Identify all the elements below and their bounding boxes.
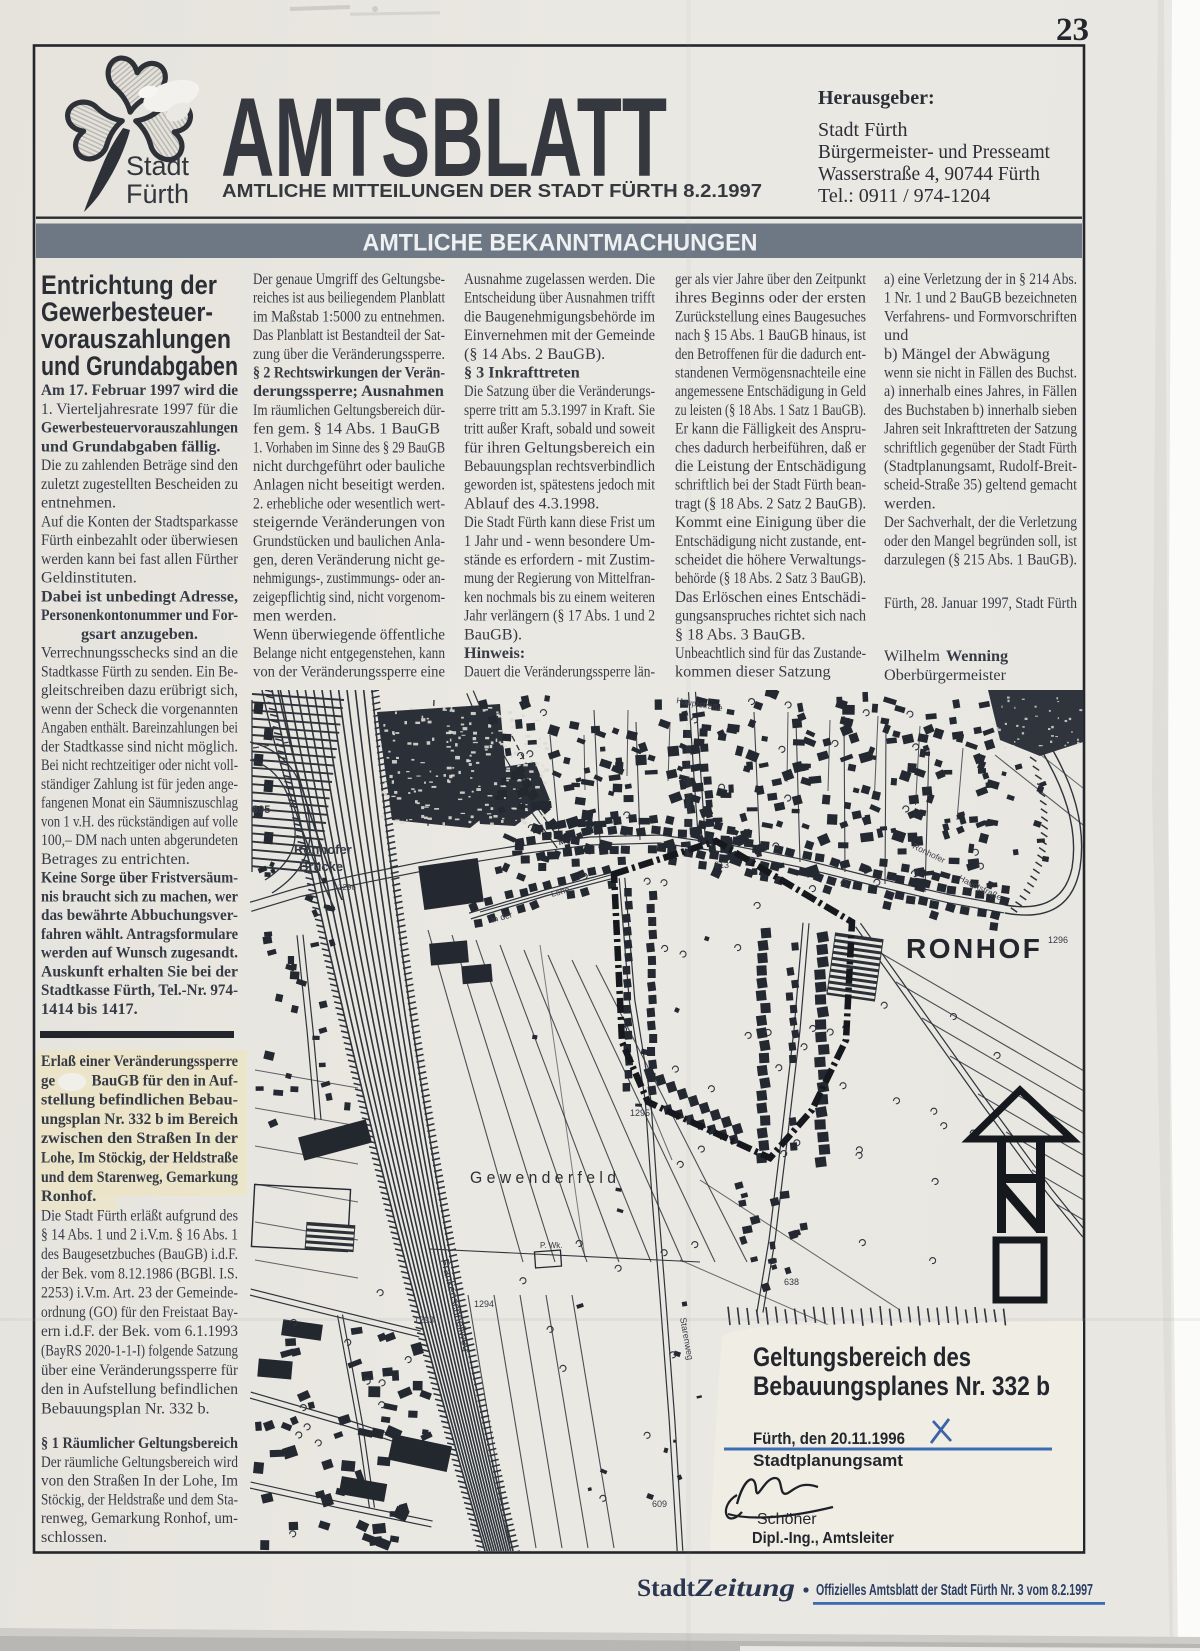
svg-text:werden kann bei fast allen Für: werden kann bei fast allen Fürther xyxy=(41,550,239,568)
svg-text:ern i.d.F. der Bek. vom 6.1.19: ern i.d.F. der Bek. vom 6.1.1993 xyxy=(41,1322,238,1340)
svg-text:scheidet die höhere Verwaltung: scheidet die höhere Verwaltungs- xyxy=(675,551,866,569)
svg-text:§ 14 Abs. 1 und 2 i.V.m. § 16: § 14 Abs. 1 und 2 i.V.m. § 16 Abs. 1 xyxy=(41,1226,238,1244)
svg-text:Die Stadt Fürth erläßt aufgrun: Die Stadt Fürth erläßt aufgrund des xyxy=(41,1206,238,1224)
svg-text:1294: 1294 xyxy=(474,1299,494,1309)
svg-text:Im räumlichen Geltungsbereich: Im räumlichen Geltungsbereich dür- xyxy=(253,401,445,419)
svg-text:Dipl.-Ing., Amtsleiter: Dipl.-Ing., Amtsleiter xyxy=(752,1530,894,1547)
svg-text:Bebauungsplan Nr. 332 b.: Bebauungsplan Nr. 332 b. xyxy=(41,1399,210,1417)
svg-text:des Baugesetzbuches (BauGB) i.: des Baugesetzbuches (BauGB) i.d.F. xyxy=(41,1245,238,1263)
svg-text:Die zu zahlenden Beträge sind: Die zu zahlenden Beträge sind den xyxy=(41,456,238,474)
svg-text:Grundstücken und baulichen Anl: Grundstücken und baulichen Anla- xyxy=(253,532,445,550)
svg-text:angemessene Entschädigung in G: angemessene Entschädigung in Geld xyxy=(675,382,866,400)
svg-text:Der Sachverhalt, der die Verle: Der Sachverhalt, der die Verletzung xyxy=(884,513,1077,531)
svg-text:Jahren seit Inkrafttreten der: Jahren seit Inkrafttreten der Satzung xyxy=(884,420,1077,438)
svg-text:mung der Regierung von Mittelf: mung der Regierung von Mittelfran- xyxy=(464,569,655,587)
svg-text:kommen dieser Satzung: kommen dieser Satzung xyxy=(675,663,831,681)
svg-text:ches dadurch herbeiführen, daß: ches dadurch herbeiführen, daß er xyxy=(675,438,867,456)
svg-text:das bewährte Abbuchungsver-: das bewährte Abbuchungsver- xyxy=(41,906,238,924)
svg-text:von 1 v.H. des rückständigen a: von 1 v.H. des rückständigen auf volle xyxy=(41,812,238,830)
svg-text:Ronhof.: Ronhof. xyxy=(41,1187,96,1205)
svg-text:zung über die Veränderungssper: zung über die Veränderungssperre. xyxy=(253,345,445,363)
svg-text:vorauszahlungen: vorauszahlungen xyxy=(41,324,231,354)
svg-text:Wenning: Wenning xyxy=(946,647,1008,665)
svg-text:fen gem. § 14 Abs. 1 BauGB: fen gem. § 14 Abs. 1 BauGB xyxy=(253,420,440,438)
svg-text:ständiger Zahlung ist für jede: ständiger Zahlung ist für jeden ange- xyxy=(41,775,238,793)
svg-text:Oberbürgermeister: Oberbürgermeister xyxy=(884,666,1007,684)
svg-text:stellung befindlichen Bebau-: stellung befindlichen Bebau- xyxy=(41,1091,238,1109)
svg-text:G e w e n d e r f e l d: G e w e n d e r f e l d xyxy=(470,1168,616,1187)
svg-text:Betrages zu entrichten.: Betrages zu entrichten. xyxy=(41,850,190,868)
svg-text:Keine Sorge über Fristversäum-: Keine Sorge über Fristversäum- xyxy=(41,869,238,887)
svg-text:1. Vierteljahresrate 1997 für: 1. Vierteljahresrate 1997 für die xyxy=(41,400,238,418)
svg-text:tritt außer Kraft, sobald und: tritt außer Kraft, sobald und soweit xyxy=(464,420,655,438)
svg-text:Wasserstraße 4, 90744 Fürth: Wasserstraße 4, 90744 Fürth xyxy=(818,163,1040,185)
svg-text:nis braucht sich zu machen, we: nis braucht sich zu machen, wer xyxy=(41,887,238,905)
svg-text:Anlagen nicht beseitigt werden: Anlagen nicht beseitigt werden. xyxy=(253,476,445,494)
svg-text:Bebauungsplanes Nr. 332 b: Bebauungsplanes Nr. 332 b xyxy=(753,1371,1050,1401)
svg-text:Lohe, Im Stöckig, der Heldstra: Lohe, Im Stöckig, der Heldstraße xyxy=(41,1149,238,1167)
svg-text:nicht durchgeführt oder baulic: nicht durchgeführt oder bauliche xyxy=(253,457,445,475)
svg-text:a) innerhalb eines Jahres, in: a) innerhalb eines Jahres, in Fällen xyxy=(884,382,1077,400)
svg-text:2253) i.V.m. Art. 23 der Gemei: 2253) i.V.m. Art. 23 der Gemeinde- xyxy=(41,1284,238,1302)
svg-text:scheid-Straße 35) geltend gema: scheid-Straße 35) geltend gemacht xyxy=(884,476,1077,494)
svg-text:23: 23 xyxy=(1056,12,1089,48)
svg-text:Am 17. Februar 1997 wird die: Am 17. Februar 1997 wird die xyxy=(41,381,238,399)
svg-text:Belange nicht entgegenstehen,: Belange nicht entgegenstehen, kann xyxy=(253,644,445,662)
svg-text:Entscheidung über Ausnahmen tr: Entscheidung über Ausnahmen trifft xyxy=(464,289,655,307)
svg-text:Entschädigung nicht zustande,: Entschädigung nicht zustande, ent- xyxy=(675,532,866,550)
svg-text:über eine Veränderungssperre f: über eine Veränderungssperre für xyxy=(41,1361,239,1379)
svg-text:für ihren Geltungsbereich ein: für ihren Geltungsbereich ein xyxy=(464,438,655,456)
svg-text:Stadt: Stadt xyxy=(126,151,190,181)
svg-text:Jahr verlängern (§ 17 Abs. 1 u: Jahr verlängern (§ 17 Abs. 1 und 2 xyxy=(464,607,655,625)
svg-text:Erlaß einer Veränderungssperre: Erlaß einer Veränderungssperre xyxy=(41,1052,238,1070)
svg-text:Wilhelm: Wilhelm xyxy=(884,647,940,665)
svg-text:1. Vorhaben im Sinne des § 29: 1. Vorhaben im Sinne des § 29 BauGB xyxy=(253,438,445,456)
svg-text:behörde (§ 18 Abs. 2 Satz 3 Ba: behörde (§ 18 Abs. 2 Satz 3 BauGB). xyxy=(675,569,866,587)
svg-text:613: 613 xyxy=(714,860,729,870)
svg-text:RONHOF: RONHOF xyxy=(906,933,1042,964)
svg-text:BauGB).: BauGB). xyxy=(464,625,522,643)
svg-text:renweg, Gemarkung Ronhof, um-: renweg, Gemarkung Ronhof, um- xyxy=(41,1509,238,1527)
svg-text:Hinweis:: Hinweis: xyxy=(464,644,525,662)
svg-text:(Stadtplanungsamt, Rudolf-Bre: (Stadtplanungsamt, Rudolf-Breit- xyxy=(884,457,1077,475)
svg-text:und dem Starenweg, Gemarkung: und dem Starenweg, Gemarkung xyxy=(41,1168,238,1186)
svg-text:Gewerbesteuer-: Gewerbesteuer- xyxy=(41,297,213,327)
svg-text:100,– DM nach unten abgerundet: 100,– DM nach unten abgerundeten xyxy=(41,831,238,849)
svg-text:Fürth, den 20.11.1996: Fürth, den 20.11.1996 xyxy=(753,1430,905,1448)
svg-text:Ablauf des 4.3.1998.: Ablauf des 4.3.1998. xyxy=(464,494,599,512)
svg-text:895: 895 xyxy=(252,804,270,816)
svg-text:wenn der Scheck die vorgenannt: wenn der Scheck die vorgenannten xyxy=(41,700,238,718)
svg-text:609: 609 xyxy=(652,1499,667,1509)
svg-text:Wenn überwiegende öffentliche: Wenn überwiegende öffentliche xyxy=(253,625,445,643)
svg-text:gleitschreiben dazu erübrigt s: gleitschreiben dazu erübrigt sich, xyxy=(41,681,238,699)
svg-text:Angaben enthält. Bareinzahlung: Angaben enthält. Bareinzahlungen bei xyxy=(41,719,238,737)
svg-text:ger als vier Jahre über den Ze: ger als vier Jahre über den Zeitpunkt xyxy=(675,270,866,288)
svg-text:werden.: werden. xyxy=(884,494,936,512)
svg-text:oder den Mangel begründen soll: oder den Mangel begründen soll, ist xyxy=(884,532,1077,550)
svg-text:Verrechnungsschecks sind an di: Verrechnungsschecks sind an die xyxy=(41,644,238,662)
svg-text:derungssperre; Ausnahmen: derungssperre; Ausnahmen xyxy=(253,382,444,400)
svg-text:Ronhofer: Ronhofer xyxy=(294,842,352,857)
svg-text:die Leistung der Entschädigung: die Leistung der Entschädigung xyxy=(675,457,866,475)
svg-text:§ 3 Inkrafttreten: § 3 Inkrafttreten xyxy=(464,364,580,382)
svg-text:AMTLICHE MITTEILUNGEN DER STAD: AMTLICHE MITTEILUNGEN DER STADT FÜRTH 8.… xyxy=(222,181,762,201)
svg-text:Stadtplanungsamt: Stadtplanungsamt xyxy=(753,1452,904,1470)
svg-text:Gewerbesteuervorauszahlungen: Gewerbesteuervorauszahlungen xyxy=(41,419,238,437)
svg-text:von der Veränderungssperre ein: von der Veränderungssperre eine xyxy=(253,663,445,681)
svg-text:1 Nr. 1 und 2 BauGB bezeichnet: 1 Nr. 1 und 2 BauGB bezeichneten xyxy=(884,289,1077,307)
svg-text:2. erhebliche oder wesentlich: 2. erhebliche oder wesentlich wert- xyxy=(253,494,445,512)
svg-text:Dabei ist unbedingt Adresse,: Dabei ist unbedingt Adresse, xyxy=(41,587,238,605)
svg-text:geworden ist, spätestens jedoc: geworden ist, spätestens jedoch mit xyxy=(464,476,655,494)
svg-text:schriftlich gegenüber der Stad: schriftlich gegenüber der Stadt Fürth xyxy=(884,438,1077,456)
svg-text:zuletzt zugestellten Bescheide: zuletzt zugestellten Bescheiden zu xyxy=(41,475,238,493)
svg-text:von den Straßen In der Lohe, I: von den Straßen In der Lohe, Im xyxy=(41,1472,238,1490)
svg-text:und: und xyxy=(884,326,908,344)
svg-text:Geltungsbereich des: Geltungsbereich des xyxy=(753,1342,971,1372)
svg-text:Unbeachtlich sind für das Zust: Unbeachtlich sind für das Zustande- xyxy=(675,644,866,662)
svg-text:schlossen.: schlossen. xyxy=(41,1528,107,1546)
svg-text:wenn sie nicht in Fällen des B: wenn sie nicht in Fällen des Buchst. xyxy=(884,364,1077,382)
svg-text:Geldinstituten.: Geldinstituten. xyxy=(41,569,137,587)
svg-text:Das Planblatt ist Bestandteil: Das Planblatt ist Bestandteil der Sat- xyxy=(253,326,445,344)
svg-text:1296: 1296 xyxy=(338,883,356,892)
svg-text:fangenen Monat ein Säumniszusc: fangenen Monat ein Säumniszuschlag xyxy=(41,794,238,812)
svg-text:Verfahrens- und Formvorschri: Verfahrens- und Formvorschriften xyxy=(884,307,1077,325)
svg-text:ungsplan Nr. 332 b im Bereich: ungsplan Nr. 332 b im Bereich xyxy=(41,1110,238,1128)
svg-text:den in Aufstellung befindliche: den in Aufstellung befindlichen xyxy=(41,1380,238,1398)
svg-text:Fürth einbezahlt oder überwies: Fürth einbezahlt oder überwiesen xyxy=(41,531,238,549)
svg-text:Entrichtung der: Entrichtung der xyxy=(41,270,217,300)
svg-text:standenen Vermögensnachteile e: standenen Vermögensnachteile eine xyxy=(675,364,866,382)
svg-text:stände es erfordern - mit Zust: stände es erfordern - mit Zustim- xyxy=(464,551,655,569)
svg-text:Offizielles Amtsblatt der Stad: Offizielles Amtsblatt der Stadt Fürth Nr… xyxy=(816,1582,1093,1599)
svg-text:werden auf Wunsch zugesandt.: werden auf Wunsch zugesandt. xyxy=(41,944,238,962)
svg-text:nehmigungs-, zustimmungs- oder: nehmigungs-, zustimmungs- oder an- xyxy=(253,569,445,587)
svg-text:zwischen den Straßen In der: zwischen den Straßen In der xyxy=(41,1129,238,1147)
svg-text:ihres Beginns oder der ersten: ihres Beginns oder der ersten xyxy=(675,289,866,307)
svg-text:§ 18 Abs. 3 BauGB.: § 18 Abs. 3 BauGB. xyxy=(675,625,805,643)
svg-text:Stadtkasse Fürth zu senden. Ei: Stadtkasse Fürth zu senden. Ein Be- xyxy=(41,662,238,680)
svg-text:darzulegen (§ 215 Abs. 1 BauGB: darzulegen (§ 215 Abs. 1 BauGB). xyxy=(884,551,1077,569)
svg-text:zeigepflichtig sind, nicht vor: zeigepflichtig sind, nicht vorgenom- xyxy=(253,588,445,606)
svg-text:tragt (§ 18 Abs. 2 Satz 2 BauG: tragt (§ 18 Abs. 2 Satz 2 BauGB). xyxy=(675,494,866,512)
svg-text:Stadt Fürth: Stadt Fürth xyxy=(818,119,907,141)
svg-text:Bei nicht rechtzeitiger oder n: Bei nicht rechtzeitiger oder nicht voll- xyxy=(41,756,238,774)
svg-text:nach § 15 Abs. 1 BauGB hinaus,: nach § 15 Abs. 1 BauGB hinaus, ist xyxy=(675,326,866,344)
svg-text:Schöner: Schöner xyxy=(757,1511,817,1528)
svg-text:Fürth: Fürth xyxy=(126,179,189,209)
svg-text:§ 2 Rechtswirkungen der Verän-: § 2 Rechtswirkungen der Verän- xyxy=(253,364,445,382)
svg-text:gungsanspruches richtet sich n: gungsanspruches richtet sich nach xyxy=(675,607,866,625)
svg-text:Zurückstellung eines Baugesuch: Zurückstellung eines Baugesuches xyxy=(675,307,866,325)
svg-text:Brücke: Brücke xyxy=(299,859,343,874)
svg-text:(§ 14 Abs. 2 BauGB).: (§ 14 Abs. 2 BauGB). xyxy=(464,345,605,363)
svg-text:sperre tritt am 5.3.1997 in Kr: sperre tritt am 5.3.1997 in Kraft. Sie xyxy=(464,401,655,419)
svg-text:fahren wählt. Antragsformulare: fahren wählt. Antragsformulare xyxy=(41,925,238,943)
svg-text:der Bek. vom 8.12.1986 (BGBl.: der Bek. vom 8.12.1986 (BGBl. I.S. xyxy=(41,1264,238,1282)
svg-text:Stöckig, der Heldstraße und de: Stöckig, der Heldstraße und dem Sta- xyxy=(41,1490,238,1508)
svg-text:b) Mängel der Abwägung: b) Mängel der Abwägung xyxy=(884,345,1050,363)
svg-text:§ 1 Räumlicher Geltungsbereich: § 1 Räumlicher Geltungsbereich xyxy=(41,1434,238,1452)
svg-text:und Grundabgaben fällig.: und Grundabgaben fällig. xyxy=(41,437,220,455)
svg-text:Die Satzung über die Veränderu: Die Satzung über die Veränderungs- xyxy=(464,382,655,400)
svg-text:men werden.: men werden. xyxy=(253,607,337,625)
svg-text:Zeitung: Zeitung xyxy=(694,1575,795,1602)
svg-text:reiches ist aus beiliegendem P: reiches ist aus beiliegendem Planblatt xyxy=(253,289,445,307)
svg-text:Dauert die Veränderungssperre: Dauert die Veränderungssperre län- xyxy=(464,663,655,681)
svg-text:Der räumliche Geltungsbereich: Der räumliche Geltungsbereich wird xyxy=(41,1453,238,1471)
svg-text:Personenkontonummer und For-: Personenkontonummer und For- xyxy=(41,606,238,624)
svg-text:(BayRS 2020-1-1-I) folgende Sa: (BayRS 2020-1-1-I) folgende Satzung xyxy=(41,1342,238,1360)
svg-text:den Betroffenen für die dadurc: den Betroffenen für die dadurch ent- xyxy=(675,345,866,363)
svg-text:Auf die Konten der Stadtsparka: Auf die Konten der Stadtsparkasse xyxy=(41,512,238,530)
svg-text:Bürgermeister- und Presseamt: Bürgermeister- und Presseamt xyxy=(818,141,1050,163)
svg-text:638: 638 xyxy=(784,1277,799,1287)
svg-text:Die Stadt Fürth kann diese Fri: Die Stadt Fürth kann diese Frist um xyxy=(464,513,655,531)
svg-text:Ausnahme zugelassen werden. Di: Ausnahme zugelassen werden. Die xyxy=(464,270,655,288)
svg-text:Herausgeber:: Herausgeber: xyxy=(818,87,935,109)
svg-text:Der genaue Umgriff des Geltung: Der genaue Umgriff des Geltungsbe- xyxy=(253,270,445,288)
svg-text:zu leisten (§ 18 Abs. 1 Satz 1: zu leisten (§ 18 Abs. 1 Satz 1 BauGB). xyxy=(675,401,866,419)
svg-text:im Maßstab 1:5000 zu entnehmen: im Maßstab 1:5000 zu entnehmen. xyxy=(253,307,445,325)
svg-text:Auskunft erhalten Sie bei der: Auskunft erhalten Sie bei der xyxy=(41,962,238,980)
svg-text:Kommt eine Einigung über die: Kommt eine Einigung über die xyxy=(675,513,866,531)
svg-text:Fürth, 28. Januar 1997, Stadt: Fürth, 28. Januar 1997, Stadt Fürth xyxy=(884,594,1077,612)
svg-text:gen, deren Veränderung nicht g: gen, deren Veränderung nicht ge- xyxy=(253,551,445,569)
svg-text:P. Wk.: P. Wk. xyxy=(540,1241,563,1250)
svg-text:der Stadtkasse sind nicht mögl: der Stadtkasse sind nicht möglich. xyxy=(41,737,238,755)
svg-text:1296: 1296 xyxy=(1048,935,1068,945)
svg-text:1295: 1295 xyxy=(630,1108,650,1118)
svg-text:Tel.: 0911 / 974-1204: Tel.: 0911 / 974-1204 xyxy=(818,185,990,207)
svg-text:ken nochmals bis zu einem weit: ken nochmals bis zu einem weiteren xyxy=(464,588,655,606)
svg-text:Einvernehmen mit der Gemeinde: Einvernehmen mit der Gemeinde xyxy=(464,326,655,344)
svg-text:Stadtkasse Fürth, Tel.-Nr. 974: Stadtkasse Fürth, Tel.-Nr. 974- xyxy=(41,981,238,999)
svg-text:und Grundabgaben: und Grundabgaben xyxy=(41,351,238,381)
svg-text:1414 bis 1417.: 1414 bis 1417. xyxy=(41,1000,138,1018)
svg-text:steigernde Veränderungen von: steigernde Veränderungen von xyxy=(253,513,445,531)
svg-text:1 Jahr und - wenn besondere Um: 1 Jahr und - wenn besondere Um- xyxy=(464,532,655,550)
svg-text:AMTLICHE BEKANNTMACHUNGEN: AMTLICHE BEKANNTMACHUNGEN xyxy=(363,230,758,257)
svg-text:Er kann die Fälligkeit des Ans: Er kann die Fälligkeit des Anspru- xyxy=(675,420,866,438)
svg-text:gsart anzugeben.: gsart anzugeben. xyxy=(81,625,198,643)
svg-text:entnehmen.: entnehmen. xyxy=(41,494,116,512)
svg-text:schriftlich bei der Stadt Fürt: schriftlich bei der Stadt Fürth bean- xyxy=(675,476,866,494)
svg-text:des Buchstaben b) innerhalb si: des Buchstaben b) innerhalb sieben xyxy=(884,401,1077,419)
svg-text:die Baugenehmigungsbehörde im: die Baugenehmigungsbehörde im xyxy=(464,307,655,325)
svg-text:a) eine Verletzung der in § 21: a) eine Verletzung der in § 214 Abs. xyxy=(884,270,1077,288)
svg-text:Das Erlöschen eines Entschädi-: Das Erlöschen eines Entschädi- xyxy=(675,588,866,606)
svg-text:Bebauungsplan rechtsverbindlic: Bebauungsplan rechtsverbindlich xyxy=(464,457,655,475)
